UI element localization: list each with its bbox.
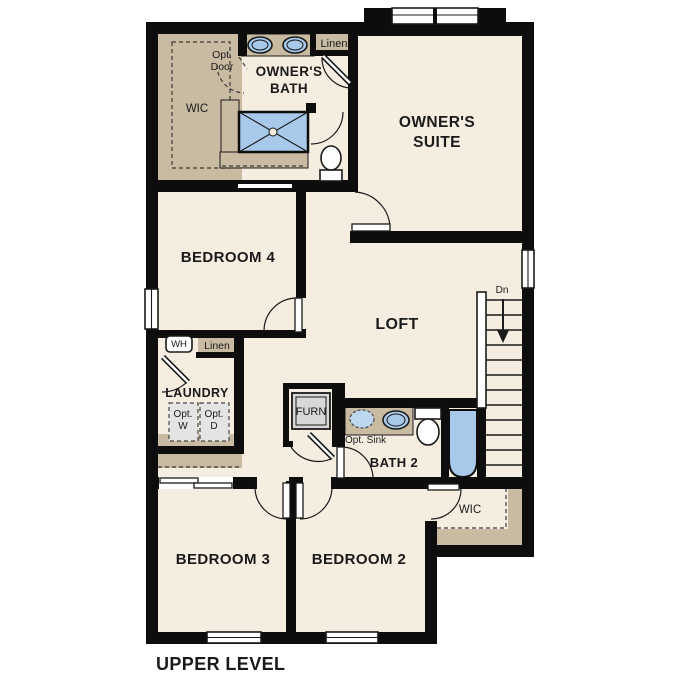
bedroom4-window	[145, 289, 158, 329]
bedroom3-label: BEDROOM 3	[176, 551, 270, 568]
owners-bath-sink-left	[248, 37, 272, 53]
bedroom3-closet-shelf	[158, 454, 242, 468]
shower-side-wall	[221, 100, 239, 152]
outside-mask	[437, 557, 687, 687]
owners-toilet	[320, 146, 342, 181]
opt-dryer-label-line2: D	[210, 421, 217, 432]
owners-suite-label-line1: OWNER'S	[399, 114, 475, 131]
opt-door-label-line1: Opt.	[212, 49, 232, 61]
water-heater-label: WH	[171, 339, 187, 350]
cased-opening	[238, 184, 292, 188]
wic-upper-label: WIC	[186, 103, 208, 115]
laundry-label: LAUNDRY	[165, 386, 229, 400]
bedroom3-window	[207, 632, 261, 643]
owners-suite-window	[392, 8, 478, 24]
bedroom2-label: BEDROOM 2	[312, 551, 406, 568]
stairwell-window	[522, 250, 534, 288]
plan-title: UPPER LEVEL	[156, 654, 285, 674]
opt-dryer-label-line1: Opt.	[205, 409, 224, 420]
owners-bath-label-line2: BATH	[270, 81, 308, 96]
owners-bath-sink-right	[283, 37, 307, 53]
opt-sink-label: Opt. Sink	[345, 435, 387, 446]
stairs-dn-label: Dn	[496, 285, 509, 296]
linen-upper-label: Linen	[321, 38, 348, 50]
bath2-sink	[383, 411, 409, 429]
owners-suite-label-line2: SUITE	[413, 134, 461, 151]
owners-shower	[239, 112, 308, 152]
bath2-label: BATH 2	[370, 455, 418, 470]
opt-washer-label-line2: W	[178, 421, 188, 432]
wic-lower-label: WIC	[459, 504, 481, 516]
bath2-tub	[449, 410, 477, 477]
owners-bath-label-line1: OWNER'S	[256, 64, 323, 79]
bedroom4-label: BEDROOM 4	[181, 249, 276, 266]
floor-plan-drawing: OWNER'S BATH OWNER'S SUITE WIC Opt. Door…	[0, 0, 687, 687]
wic-lower-shelf-bottom	[437, 529, 522, 545]
floor-plan-page: OWNER'S BATH OWNER'S SUITE WIC Opt. Door…	[0, 0, 687, 687]
bath2-toilet	[415, 408, 441, 445]
bath2-optional-sink	[350, 410, 374, 428]
wic-lower-shelf-right	[508, 489, 522, 531]
opt-washer-label-line1: Opt.	[174, 409, 193, 420]
loft-label: LOFT	[375, 316, 418, 333]
linen-lower-label: Linen	[204, 340, 230, 352]
bedroom2-window	[326, 632, 378, 643]
opt-door-label-line2: Door	[211, 61, 234, 73]
furnace-label: FURN	[296, 406, 327, 418]
stair-railing	[477, 292, 486, 408]
bedroom3-closet-bypass-doors	[159, 477, 233, 489]
